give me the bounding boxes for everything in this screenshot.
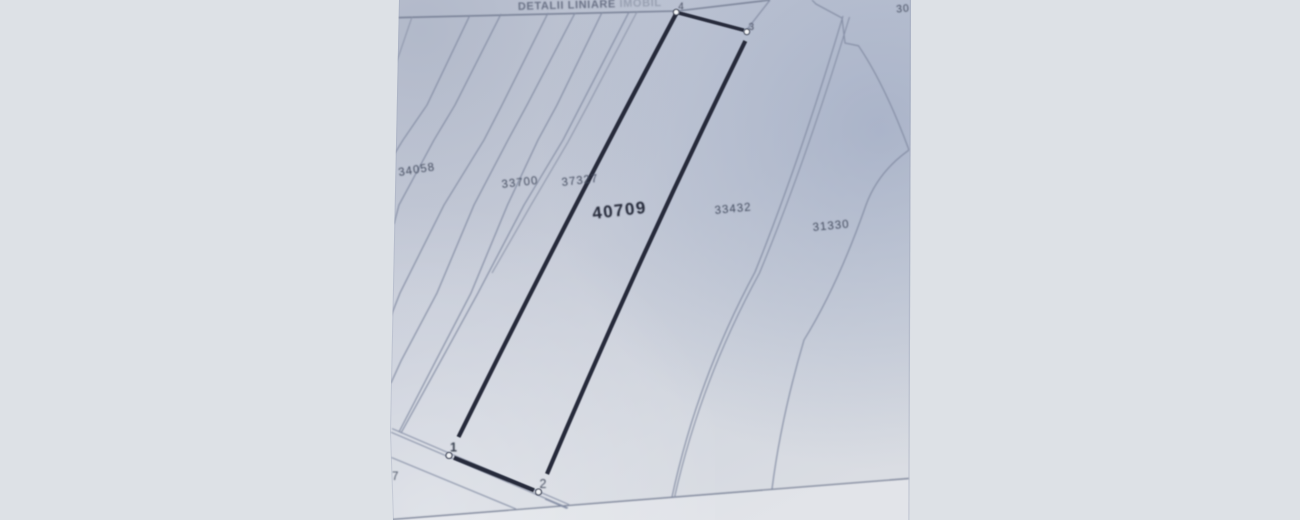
svg-text:7: 7	[392, 471, 399, 483]
svg-text:2: 2	[540, 477, 548, 491]
svg-text:1: 1	[450, 441, 458, 455]
svg-text:30: 30	[896, 2, 911, 15]
